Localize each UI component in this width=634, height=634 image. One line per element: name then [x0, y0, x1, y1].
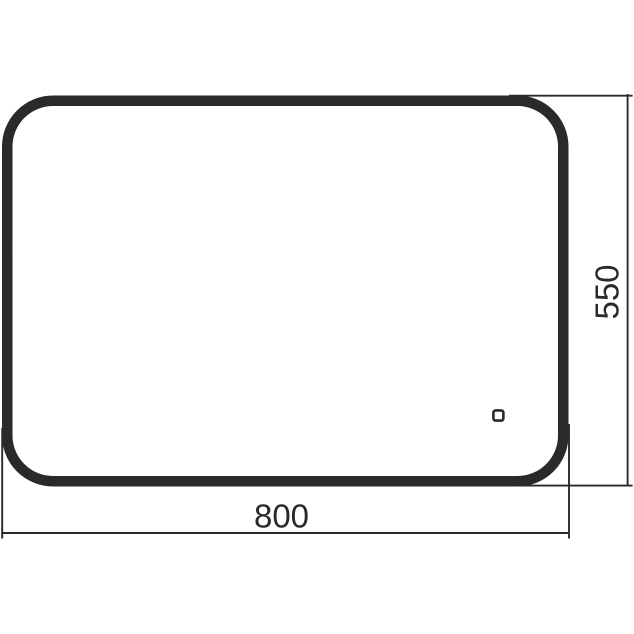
- svg-text:550: 550: [589, 264, 626, 319]
- svg-text:800: 800: [254, 498, 309, 535]
